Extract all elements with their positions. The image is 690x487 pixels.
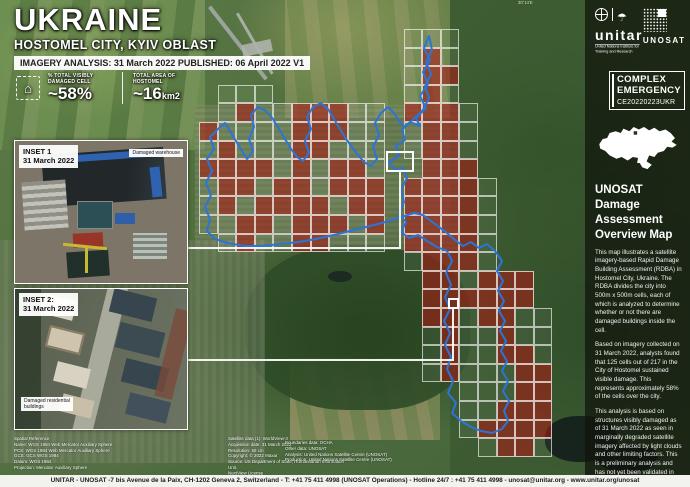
grid-cell-no-damage — [478, 252, 497, 271]
grid-cell-damage — [515, 345, 534, 364]
grid-cell-damage — [534, 401, 553, 420]
grid-cell-damage — [422, 66, 441, 85]
grid-cell-no-damage — [255, 234, 274, 253]
grid-cell-damage — [404, 103, 423, 122]
stat-value: ~58% — [48, 85, 92, 104]
grid-cell-damage — [515, 382, 534, 401]
divider — [122, 72, 123, 104]
inset1-annotation: Damaged warehouse — [129, 149, 183, 157]
grid-cell-no-damage — [478, 327, 497, 346]
grid-cell-no-damage — [218, 234, 237, 253]
grid-cell-damage — [422, 122, 441, 141]
grid-cell-no-damage — [459, 308, 478, 327]
inset1-extent-box — [386, 151, 414, 172]
grid-cell-no-damage — [199, 215, 218, 234]
grid-cell-damage — [441, 66, 460, 85]
unosat-logo: UNOSAT — [643, 8, 686, 45]
grid-cell-damage — [422, 271, 441, 290]
area-unit: km2 — [162, 91, 180, 101]
damaged-building-icon: ⌂ — [16, 76, 40, 100]
emergency-box: COMPLEX EMERGENCY CE20220223UKR — [609, 71, 685, 110]
graticule-label: 30°14'E — [518, 1, 533, 5]
grid-cell-damage — [218, 141, 237, 160]
grid-cell-no-damage — [311, 178, 330, 197]
grid-cell-damage — [441, 271, 460, 290]
grid-cell-damage — [459, 234, 478, 253]
grid-cell-no-damage — [534, 308, 553, 327]
grid-cell-no-damage — [255, 178, 274, 197]
grid-cell-no-damage — [255, 122, 274, 141]
grid-cell-damage — [422, 141, 441, 160]
grid-cell-damage — [348, 178, 367, 197]
inset-date: 31 March 2022 — [23, 156, 74, 165]
grid-cell-no-damage — [459, 401, 478, 420]
grid-cell-damage — [422, 252, 441, 271]
grid-cell-no-damage — [478, 215, 497, 234]
sidebar-paragraph: This map illustrates a satellite imagery… — [595, 249, 682, 336]
sidebar-heading: UNOSAT Damage Assessment Overview Map — [595, 183, 682, 243]
title-block: UKRAINE HOSTOMEL CITY, KYIV OBLAST IMAGE… — [14, 4, 310, 71]
grid-cell-damage — [422, 234, 441, 253]
grid-cell-damage — [348, 196, 367, 215]
grid-cell-no-damage — [459, 122, 478, 141]
divider — [612, 8, 613, 21]
grid-cell-no-damage — [515, 308, 534, 327]
grid-cell-no-damage — [478, 382, 497, 401]
grid-cell-damage — [404, 215, 423, 234]
grid-cell-damage — [255, 196, 274, 215]
grid-cell-no-damage — [199, 178, 218, 197]
imagery-shape — [53, 361, 91, 389]
unitar-logo: ☂ unitar United Nations Institute for Tr… — [595, 8, 643, 61]
unitar-wordmark: unitar — [595, 28, 643, 42]
grid-cell-damage — [422, 308, 441, 327]
grid-cell-damage — [497, 438, 516, 457]
grid-cell-damage — [255, 215, 274, 234]
grid-cell-no-damage — [199, 196, 218, 215]
imagery-shape — [66, 250, 110, 279]
grid-cell-damage — [311, 234, 330, 253]
grid-cell-no-damage — [478, 234, 497, 253]
grid-cell-damage — [236, 178, 255, 197]
grid-cell-damage — [218, 196, 237, 215]
grid-cell-no-damage — [497, 382, 516, 401]
grid-cell-damage — [311, 141, 330, 160]
inset1-label: INSET 1 31 March 2022 — [19, 145, 78, 168]
grid-cell-no-damage — [459, 103, 478, 122]
grid-cell-damage — [329, 122, 348, 141]
stat-total-area: TOTAL AREA OF HOSTOMEL ~16km2 — [133, 73, 203, 104]
grid-cell-damage — [478, 420, 497, 439]
grid-cell-damage — [236, 234, 255, 253]
grid-cell-no-damage — [497, 364, 516, 383]
grid-cell-no-damage — [348, 122, 367, 141]
grid-cell-no-damage — [348, 234, 367, 253]
footnote-line: Projection: Mercator Auxiliary Sphere — [14, 466, 199, 472]
grid-cell-damage — [218, 159, 237, 178]
emergency-code: CE20220223UKR — [617, 99, 679, 106]
grid-cell-damage — [218, 178, 237, 197]
footer-contact-bar: UNITAR - UNOSAT -7 bis Avenue de la Paix… — [0, 475, 690, 487]
grid-cell-no-damage — [459, 141, 478, 160]
grid-cell-damage — [515, 420, 534, 439]
grid-cell-no-damage — [236, 196, 255, 215]
parachute-icon: ☂ — [617, 12, 627, 24]
grid-cell-damage — [441, 196, 460, 215]
grid-cell-no-damage — [199, 141, 218, 160]
grid-cell-no-damage — [218, 215, 237, 234]
grid-cell-damage — [441, 215, 460, 234]
stats-block: ⌂ % TOTAL VISIBLY DAMAGED CELL ~58% TOTA… — [16, 72, 203, 104]
inset-title: INSET 2: — [23, 295, 54, 304]
grid-cell-damage — [199, 122, 218, 141]
grid-cell-no-damage — [329, 196, 348, 215]
page-title: UKRAINE — [14, 4, 310, 37]
grid-cell-no-damage — [348, 215, 367, 234]
inset2-leader-line — [452, 309, 454, 360]
logo-row: ☂ unitar United Nations Institute for Tr… — [595, 8, 682, 61]
grid-cell-no-damage — [459, 420, 478, 439]
grid-cell-damage — [478, 289, 497, 308]
grid-cell-damage — [329, 159, 348, 178]
grid-cell-damage — [422, 215, 441, 234]
map-poster: 30°14'E UKRAINE HOSTOMEL CITY, KYIV OBLA… — [0, 0, 690, 487]
inset-date: 31 March 2022 — [23, 304, 74, 313]
grid-cell-damage — [534, 382, 553, 401]
grid-cell-damage — [534, 364, 553, 383]
grid-cell-damage — [404, 234, 423, 253]
grid-cell-damage — [273, 196, 292, 215]
grid-cell-damage — [404, 196, 423, 215]
grid-cell-damage — [311, 196, 330, 215]
grid-cell-no-damage — [366, 122, 385, 141]
grid-cell-damage — [441, 327, 460, 346]
grid-cell-damage — [497, 289, 516, 308]
unosat-qr-icon — [643, 8, 667, 32]
grid-cell-no-damage — [441, 85, 460, 104]
grid-cell-damage — [441, 122, 460, 141]
grid-cell-damage — [422, 196, 441, 215]
grid-cell-no-damage — [459, 364, 478, 383]
grid-cell-no-damage — [404, 85, 423, 104]
grid-cell-damage — [404, 178, 423, 197]
grid-cell-damage — [515, 364, 534, 383]
inset1-satellite-image: INSET 1 31 March 2022 Damaged warehouse — [14, 140, 188, 284]
grid-cell-no-damage — [218, 103, 237, 122]
grid-cell-damage — [292, 103, 311, 122]
grid-cell-damage — [497, 327, 516, 346]
grid-cell-damage — [236, 159, 255, 178]
grid-cell-damage — [311, 215, 330, 234]
house-icon: ⌂ — [24, 81, 32, 96]
grid-cell-damage — [515, 271, 534, 290]
grid-cell-no-damage — [404, 29, 423, 48]
grid-cell-no-damage — [255, 141, 274, 160]
grid-cell-no-damage — [478, 401, 497, 420]
grid-cell-no-damage — [366, 141, 385, 160]
grid-cell-no-damage — [422, 364, 441, 383]
grid-cell-damage — [441, 234, 460, 253]
grid-cell-damage — [459, 178, 478, 197]
grid-cell-damage — [199, 159, 218, 178]
grid-cell-no-damage — [478, 345, 497, 364]
grid-cell-damage — [292, 122, 311, 141]
grid-cell-no-damage — [366, 103, 385, 122]
inset1-leader-line — [188, 247, 401, 249]
grid-cell-damage — [292, 178, 311, 197]
grid-cell-no-damage — [255, 85, 274, 104]
grid-cell-damage — [515, 289, 534, 308]
grid-cell-damage — [459, 252, 478, 271]
grid-cell-no-damage — [478, 178, 497, 197]
ukraine-locator-map — [595, 118, 681, 172]
grid-cell-damage — [236, 103, 255, 122]
grid-cell-damage — [459, 289, 478, 308]
imagery-shape — [115, 322, 166, 358]
inset-title: INSET 1 — [23, 147, 51, 156]
page-subtitle: HOSTOMEL CITY, KYIV OBLAST — [14, 38, 310, 52]
grid-cell-no-damage — [255, 103, 274, 122]
inset1-leader-line — [399, 172, 401, 248]
grid-cell-damage — [497, 308, 516, 327]
grid-cell-damage — [497, 401, 516, 420]
grid-cell-damage — [422, 103, 441, 122]
grid-cell-no-damage — [534, 438, 553, 457]
grid-cell-no-damage — [273, 103, 292, 122]
grid-cell-damage — [422, 85, 441, 104]
stat-damaged-cells: % TOTAL VISIBLY DAMAGED CELL ~58% — [48, 73, 118, 104]
grid-cell-no-damage — [478, 364, 497, 383]
grid-cell-damage — [422, 178, 441, 197]
inset2-annotation: Damaged residential buildings — [21, 397, 73, 411]
grid-cell-damage — [459, 215, 478, 234]
grid-cell-damage — [292, 215, 311, 234]
grid-cell-damage — [422, 48, 441, 67]
grid-cell-damage — [515, 401, 534, 420]
grid-cell-damage — [441, 103, 460, 122]
grid-cell-no-damage — [329, 141, 348, 160]
grid-cell-damage — [255, 159, 274, 178]
grid-cell-damage — [515, 438, 534, 457]
grid-cell-no-damage — [459, 271, 478, 290]
inset2-label: INSET 2: 31 March 2022 — [19, 293, 78, 316]
grid-cell-damage — [292, 159, 311, 178]
grid-cell-damage — [329, 103, 348, 122]
grid-cell-damage — [459, 196, 478, 215]
grid-cell-no-damage — [459, 327, 478, 346]
grid-cell-no-damage — [404, 48, 423, 67]
grid-cell-no-damage — [404, 252, 423, 271]
grid-cell-damage — [497, 420, 516, 439]
stat-label: % TOTAL VISIBLY DAMAGED CELL — [48, 73, 118, 85]
grid-cell-no-damage — [478, 438, 497, 457]
grid-cell-no-damage — [422, 327, 441, 346]
grid-cell-damage — [366, 215, 385, 234]
grid-cell-no-damage — [348, 103, 367, 122]
grid-cell-no-damage — [459, 345, 478, 364]
grid-cell-damage — [478, 308, 497, 327]
imagery-shape — [45, 325, 85, 355]
grid-cell-damage — [478, 271, 497, 290]
grid-cell-damage — [459, 159, 478, 178]
grid-cell-damage — [441, 308, 460, 327]
grid-cell-damage — [329, 178, 348, 197]
inset2-satellite-image: INSET 2: 31 March 2022 Damaged residenti… — [14, 288, 188, 430]
area-number: ~16 — [133, 84, 162, 103]
analysis-date-bar: IMAGERY ANALYSIS: 31 March 2022 PUBLISHE… — [14, 56, 310, 70]
grid-cell-damage — [366, 196, 385, 215]
emergency-type: EMERGENCY — [617, 86, 679, 97]
grid-cell-damage — [236, 215, 255, 234]
footnote-spatial-reference: Spatial Reference Name: WGS 1984 Web Mer… — [14, 437, 199, 472]
grid-cell-damage — [534, 420, 553, 439]
unitar-tagline: United Nations Institute for Training an… — [595, 44, 640, 55]
grid-cell-damage — [366, 178, 385, 197]
grid-cell-damage — [441, 364, 460, 383]
grid-cell-damage — [422, 289, 441, 308]
un-emblem-icon — [595, 8, 608, 21]
grid-cell-damage — [311, 122, 330, 141]
grid-cell-damage — [441, 178, 460, 197]
unosat-wordmark: UNOSAT — [643, 36, 686, 45]
sidebar-paragraph: Based on imagery collected on 31 March 2… — [595, 341, 682, 402]
grid-cell-no-damage — [404, 122, 423, 141]
grid-cell-damage — [497, 271, 516, 290]
hostomel-marker — [634, 131, 637, 134]
grid-cell-no-damage — [422, 29, 441, 48]
footnote-credits: Boundaries data: OCHA Other data: UNOSAT… — [285, 441, 448, 464]
grid-cell-no-damage — [273, 122, 292, 141]
imagery-shape — [133, 233, 167, 259]
grid-cell-no-damage — [348, 141, 367, 160]
imagery-shape — [115, 213, 135, 224]
grid-cell-no-damage — [366, 234, 385, 253]
grid-cell-no-damage — [366, 159, 385, 178]
grid-cell-damage — [422, 159, 441, 178]
grid-cell-damage — [348, 159, 367, 178]
sidebar: ☂ unitar United Nations Institute for Tr… — [585, 0, 690, 475]
imagery-shape — [85, 247, 88, 273]
grid-cell-no-damage — [441, 48, 460, 67]
grid-cell-no-damage — [273, 141, 292, 160]
grid-cell-damage — [292, 141, 311, 160]
grid-cell-no-damage — [218, 122, 237, 141]
grid-cell-no-damage — [534, 345, 553, 364]
grid-cell-damage — [292, 196, 311, 215]
grid-cell-no-damage — [236, 141, 255, 160]
grid-cell-no-damage — [478, 196, 497, 215]
grid-cell-no-damage — [236, 85, 255, 104]
imagery-shape — [77, 201, 113, 229]
grid-cell-damage — [441, 141, 460, 160]
grid-cell-no-damage — [404, 66, 423, 85]
grid-cell-damage — [311, 103, 330, 122]
grid-cell-damage — [273, 178, 292, 197]
grid-cell-no-damage — [534, 327, 553, 346]
grid-cell-damage — [292, 234, 311, 253]
stat-value: ~16km2 — [133, 85, 180, 104]
grid-cell-no-damage — [273, 234, 292, 253]
grid-cell-damage — [329, 215, 348, 234]
grid-cell-no-damage — [218, 85, 237, 104]
grid-cell-no-damage — [459, 382, 478, 401]
inset2-extent-box — [448, 298, 459, 309]
imagery-shape — [21, 180, 68, 231]
grid-cell-no-damage — [236, 122, 255, 141]
grid-cell-no-damage — [329, 234, 348, 253]
inset2-leader-line — [188, 359, 454, 361]
grid-cell-no-damage — [441, 29, 460, 48]
grid-cell-damage — [441, 252, 460, 271]
grid-cell-no-damage — [273, 215, 292, 234]
grid-cell-damage — [497, 345, 516, 364]
grid-cell-damage — [441, 159, 460, 178]
grid-cell-no-damage — [273, 159, 292, 178]
footnote-line: Production: United Nations Satellite Cen… — [285, 458, 448, 464]
grid-cell-no-damage — [311, 159, 330, 178]
grid-cell-no-damage — [515, 327, 534, 346]
